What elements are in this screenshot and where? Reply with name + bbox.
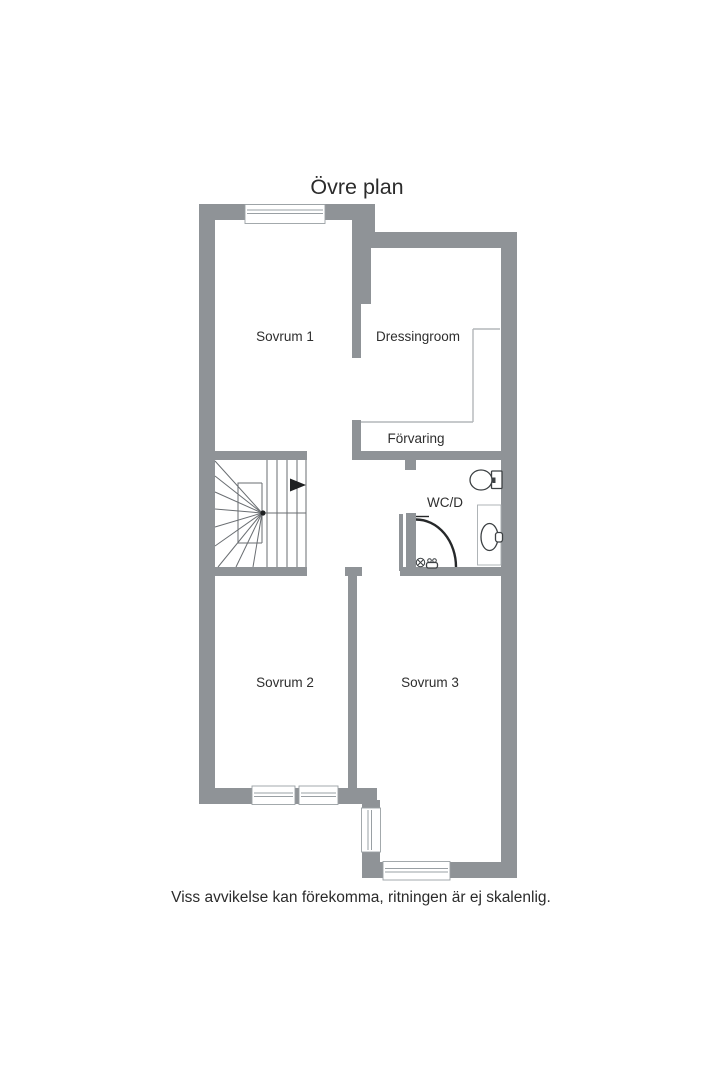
stair-direction-arrow-icon (290, 479, 306, 492)
room-label-sovrum1: Sovrum 1 (256, 329, 314, 344)
wcd-door-leaf (399, 514, 403, 571)
room-label-dressingroom: Dressingroom (376, 329, 460, 344)
wall-shower (406, 513, 416, 567)
wall-stair-south (215, 567, 307, 576)
wall-wcd-south (400, 567, 501, 576)
page-title: Övre plan (310, 175, 403, 199)
window-sovrum1-north (245, 205, 325, 224)
shower-enclosure-icon (416, 517, 456, 569)
window-side-vertical (362, 808, 381, 852)
windows (245, 205, 450, 881)
shower-mixer-icon (427, 559, 438, 568)
floorplan-page: Övre plan (0, 0, 720, 1080)
stair-pivot-dot (260, 510, 265, 515)
wall-forvaring-south (352, 451, 501, 460)
staircase-icon (215, 460, 306, 567)
toilet-icon (470, 470, 502, 490)
window-sovrum2-right (299, 786, 338, 805)
wall-sovrum1-dressing-upper (352, 220, 371, 304)
washbasin-icon (478, 505, 503, 565)
wall-wcd-door-jamb (405, 460, 416, 470)
wall-dressingroom-top (361, 232, 517, 248)
room-label-wcd: WC/D (427, 495, 463, 510)
wcd-fixtures (416, 470, 503, 568)
window-sovrum2-left (252, 786, 295, 805)
wall-sovrum2-sovrum3-divider (348, 576, 357, 788)
room-label-forvaring: Förvaring (387, 431, 444, 446)
shower-drain-icon (416, 558, 424, 566)
floorplan-canvas: Övre plan (0, 0, 720, 1080)
window-sovrum3-south (383, 862, 450, 881)
wall-exterior-right (501, 232, 517, 878)
wall-sovrum1-dressing-lower (352, 304, 361, 358)
wall-sovrum1-south (215, 451, 307, 460)
disclaimer-text: Viss avvikelse kan förekomma, ritningen … (171, 889, 551, 906)
room-label-sovrum3: Sovrum 3 (401, 675, 459, 690)
wall-exterior-left (199, 204, 215, 804)
room-label-sovrum2: Sovrum 2 (256, 675, 314, 690)
wall-hall-south-cap (345, 567, 362, 576)
